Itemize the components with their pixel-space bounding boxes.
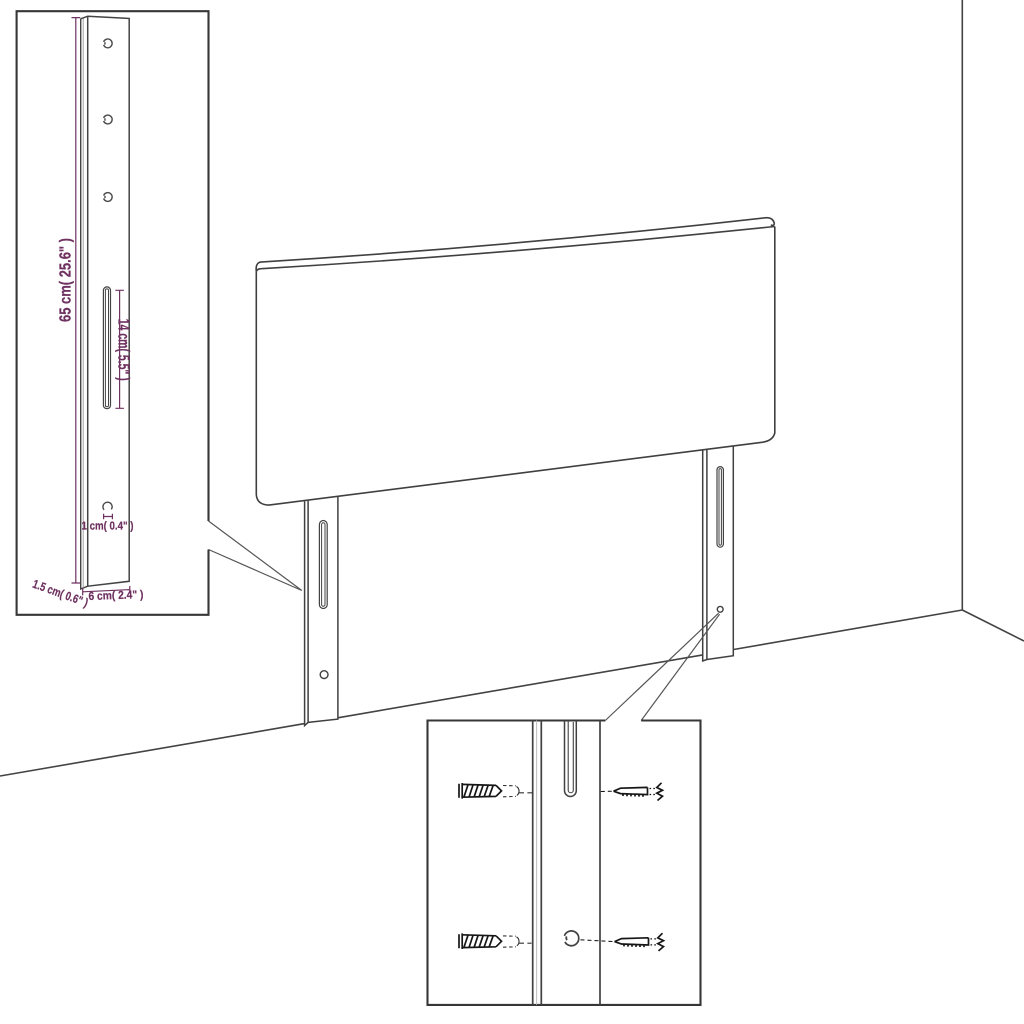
svg-text:65 cm( 25.6" ): 65 cm( 25.6" ) bbox=[58, 238, 75, 322]
svg-text:14 cm( 5.5" ): 14 cm( 5.5" ) bbox=[114, 319, 131, 381]
svg-text:1 cm( 0.4" ): 1 cm( 0.4" ) bbox=[82, 520, 134, 532]
svg-text:6 cm( 2.4" ): 6 cm( 2.4" ) bbox=[88, 589, 144, 603]
